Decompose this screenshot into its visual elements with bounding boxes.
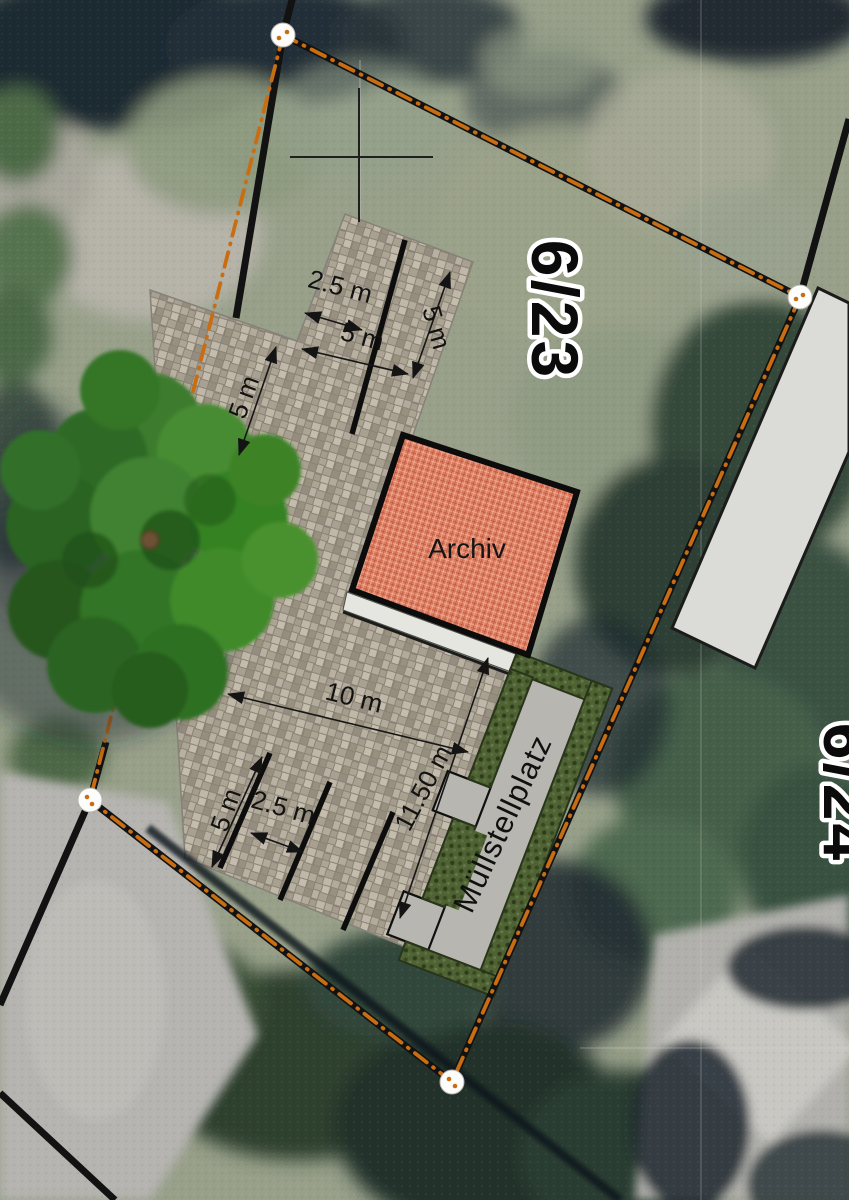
site-plan: 2.5 m 5 m 5 m 5 m 10 m 11.50 m 5 m 2.5 m…	[0, 0, 849, 1200]
adjacent-parcel-label: 6/24	[810, 723, 849, 863]
parcel-label: 6/23	[518, 240, 592, 380]
archiv-label: Archiv	[428, 533, 506, 564]
tree-trunk	[141, 531, 159, 549]
site-plan-page: 2.5 m 5 m 5 m 5 m 10 m 11.50 m 5 m 2.5 m…	[0, 0, 849, 1200]
boundary-marker-south	[440, 1070, 464, 1094]
boundary-marker-west	[78, 788, 102, 812]
boundary-marker-north	[271, 23, 295, 47]
boundary-marker-east	[788, 285, 812, 309]
